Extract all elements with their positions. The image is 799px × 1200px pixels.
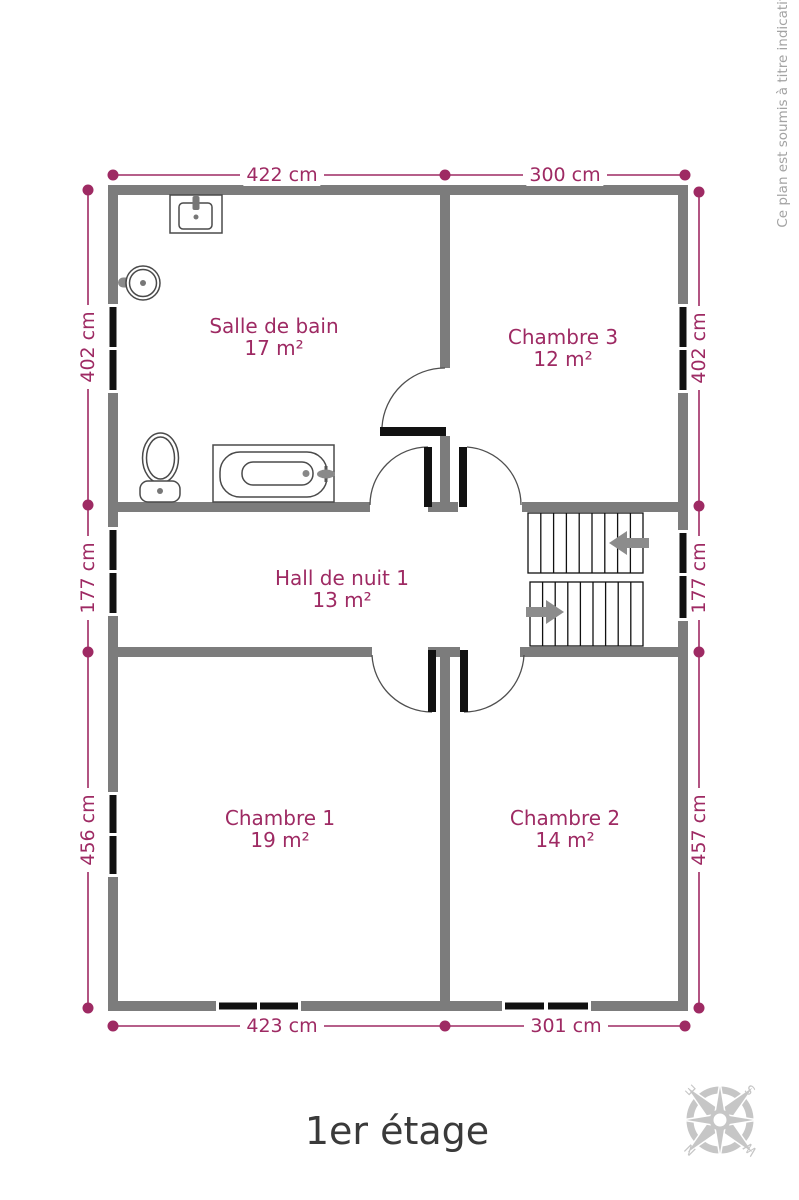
- wall-hall-top-right: [522, 502, 688, 512]
- door-leaf-hall-chambre2: [460, 650, 468, 712]
- wall-hall-bottom-right: [520, 647, 688, 657]
- door-leaf-hall-chambre3: [459, 447, 467, 507]
- wall-hall-top-stub: [428, 502, 458, 512]
- bathtub: [213, 445, 335, 502]
- compass-south-label: S: [743, 1081, 759, 1097]
- room-area: 17 m²: [209, 337, 338, 359]
- room-area: 19 m²: [225, 829, 335, 851]
- bathtub-drain: [303, 470, 310, 477]
- dimension-left-lower: 456 cm: [77, 791, 99, 868]
- dimension-left-middle: 177 cm: [77, 539, 99, 616]
- room-label-chambre-3: Chambre 3 12 m²: [508, 326, 618, 370]
- sink-faucet: [193, 196, 200, 210]
- room-name: Chambre 1: [225, 807, 335, 829]
- sink: [170, 195, 222, 233]
- window-hall-left: [107, 527, 119, 616]
- window-chambre2-bottom: [502, 1000, 591, 1012]
- window-bathroom-left: [107, 304, 119, 393]
- room-label-chambre-2: Chambre 2 14 m²: [510, 807, 620, 851]
- dimension-top-right: 300 cm: [526, 164, 603, 186]
- windows: [107, 304, 689, 1012]
- room-label-hall-de-nuit: Hall de nuit 1 13 m²: [275, 567, 409, 611]
- washbasin-drain: [140, 280, 146, 286]
- sink-drain: [194, 215, 199, 220]
- wall-divider-top-upper: [440, 195, 450, 368]
- wall-hall-top-left: [108, 502, 370, 512]
- dimension-left-upper: 402 cm: [77, 308, 99, 385]
- room-name: Chambre 3: [508, 326, 618, 348]
- toilet-flush: [157, 488, 163, 494]
- compass-rose: N E S W: [649, 1049, 791, 1191]
- dimension-right-upper: 402 cm: [688, 309, 710, 386]
- stairs-upper-flight: [528, 513, 649, 573]
- wall-divider-top-lower: [440, 436, 450, 512]
- stairs: [526, 513, 649, 646]
- dimension-right-middle: 177 cm: [688, 539, 710, 616]
- room-name: Salle de bain: [209, 315, 338, 337]
- window-chambre1-bottom: [216, 1000, 301, 1012]
- dimension-bottom-left: 423 cm: [243, 1015, 320, 1037]
- window-chambre1-left: [107, 792, 119, 877]
- door-leaf-hall-chambre1: [428, 650, 436, 712]
- wall-hall-bottom-left: [108, 647, 372, 657]
- room-label-salle-de-bain: Salle de bain 17 m²: [209, 315, 338, 359]
- round-washbasin: [118, 266, 160, 300]
- door-arc-hall-chambre2: [464, 655, 524, 712]
- dimension-right-lower: 457 cm: [688, 791, 710, 868]
- disclaimer-note: Ce plan est soumis à titre indicatif: [775, 0, 791, 228]
- wall-divider-bottom: [440, 650, 450, 1001]
- room-name: Chambre 2: [510, 807, 620, 829]
- toilet: [140, 433, 180, 502]
- room-area: 13 m²: [275, 589, 409, 611]
- door-arc-bathroom-chambre3: [382, 368, 445, 427]
- door-arc-hall-chambre1: [372, 655, 432, 712]
- door-leaf-bathroom-chambre3: [380, 427, 446, 436]
- room-area: 12 m²: [508, 348, 618, 370]
- floor-title: 1er étage: [305, 1109, 489, 1153]
- dimension-top-left: 422 cm: [243, 164, 320, 186]
- dimension-bottom-right: 301 cm: [527, 1015, 604, 1037]
- door-arc-hall-bathroom: [370, 447, 428, 505]
- room-name: Hall de nuit 1: [275, 567, 409, 589]
- door-arc-hall-chambre3: [467, 447, 521, 505]
- floor-plan-page: N E S W Salle de bain 17 m² Chambre 3 12…: [0, 0, 799, 1200]
- bathtub-faucet-handle: [317, 470, 335, 479]
- wall-top: [108, 185, 688, 195]
- room-label-chambre-1: Chambre 1 19 m²: [225, 807, 335, 851]
- room-area: 14 m²: [510, 829, 620, 851]
- stairs-lower-flight: [526, 582, 643, 646]
- door-leaf-hall-bathroom: [424, 447, 432, 507]
- wall-bottom: [108, 1001, 688, 1011]
